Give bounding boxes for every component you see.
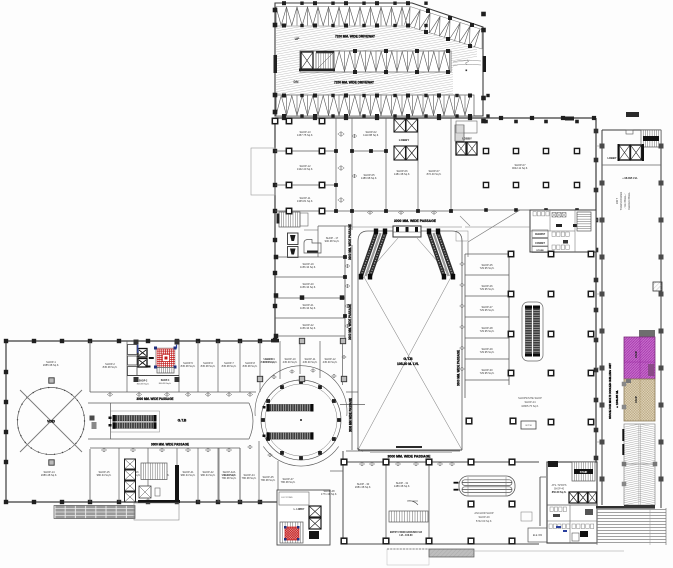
svg-text:3000 MM. WIDE PASSAGE: 3000 MM. WIDE PASSAGE — [348, 223, 352, 260]
svg-text:10805.75 Sq.ft.: 10805.75 Sq.ft. — [521, 404, 539, 408]
svg-text:845.38 Sq.ft.: 845.38 Sq.ft. — [103, 365, 118, 369]
svg-text:445.30 Sq.ft.: 445.30 Sq.ft. — [283, 360, 298, 364]
svg-text:3000 MM. WIDE PASSAGE: 3000 MM. WIDE PASSAGE — [137, 397, 174, 401]
svg-text:729.95 Sq.ft.: 729.95 Sq.ft. — [480, 308, 495, 312]
svg-text:845.38 Sq.ft.: 845.38 Sq.ft. — [222, 364, 237, 368]
svg-text:3000 MM. WIDE PASSAGE: 3000 MM. WIDE PASSAGE — [457, 349, 461, 386]
svg-text:1486.38 Sq.ft.: 1486.38 Sq.ft. — [394, 484, 410, 488]
svg-text:COSMET: COSMET — [535, 243, 545, 245]
svg-text:RAMP: RAMP — [635, 396, 638, 403]
svg-text:1156.34 Sq.ft.: 1156.34 Sq.ft. — [300, 285, 316, 289]
svg-text:3000 MM WIDE PASSAGE: 3000 MM WIDE PASSAGE — [349, 398, 353, 432]
svg-text:ANCHOR SHOP: ANCHOR SHOP — [474, 511, 494, 515]
svg-text:1481.38 Sq.ft.: 1481.38 Sq.ft. — [394, 172, 410, 176]
svg-text:SHOP-4: SHOP-4 — [161, 379, 170, 382]
svg-text:729.95 Sq.ft.: 729.95 Sq.ft. — [480, 287, 495, 291]
svg-text:+ 108.35 M.: + 108.35 M. — [615, 390, 619, 408]
svg-text:200 T: 200 T — [616, 197, 619, 204]
svg-text:ELE. RM: ELE. RM — [533, 535, 542, 537]
svg-text:TRANSFORMER: TRANSFORMER — [620, 191, 623, 210]
svg-text:445.30 Sq.ft.: 445.30 Sq.ft. — [303, 360, 318, 364]
svg-text:LOBBY: LOBBY — [399, 138, 410, 142]
svg-text:G.T.B: G.T.B — [403, 357, 413, 361]
svg-text:9042.11 Sq.ft.: 9042.11 Sq.ft. — [512, 166, 528, 170]
svg-text:SHOP-2: SHOP-2 — [139, 381, 148, 383]
svg-text:800.38 Sq.ft.: 800.38 Sq.ft. — [137, 382, 150, 385]
svg-text:1156.34 Sq.ft.: 1156.34 Sq.ft. — [300, 265, 316, 269]
svg-text:1771.38 Sq.ft.: 1771.38 Sq.ft. — [321, 492, 337, 496]
svg-text:729.95 Sq.ft.: 729.95 Sq.ft. — [480, 350, 495, 354]
svg-text:G.T.B: G.T.B — [178, 419, 187, 423]
svg-text:7200 MM. WIDE DRIVEWAY: 7200 MM. WIDE DRIVEWAY — [334, 80, 374, 85]
svg-text:980.34 Sq.ft.: 980.34 Sq.ft. — [181, 473, 196, 477]
svg-text:3000 MM. WIDE PASSAGE: 3000 MM. WIDE PASSAGE — [348, 303, 352, 340]
svg-text:1486.98 Sq.ft.: 1486.98 Sq.ft. — [361, 176, 377, 180]
svg-text:5742.60 Sq.ft.: 5742.60 Sq.ft. — [476, 519, 492, 523]
svg-text:2085.38 Sq.ft.: 2085.38 Sq.ft. — [43, 363, 59, 367]
svg-text:1457.75 Sq.ft.: 1457.75 Sq.ft. — [297, 133, 313, 137]
svg-text:872.40 Sq.ft.: 872.40 Sq.ft. — [427, 172, 442, 176]
svg-text:786.38 Sq.ft.: 786.38 Sq.ft. — [281, 480, 296, 484]
svg-text:105.20 M. LVL: 105.20 M. LVL — [397, 362, 419, 366]
svg-text:STAIR: STAIR — [580, 470, 588, 474]
svg-text:1342.40 Sq.ft.: 1342.40 Sq.ft. — [297, 167, 313, 171]
svg-text:SPACE FOR MULTI COOLED CHILLIN: SPACE FOR MULTI COOLED CHILLING UNIT — [608, 363, 612, 419]
svg-text:STORE: STORE — [536, 250, 544, 252]
svg-text:FEEDER PANEL: FEEDER PANEL — [628, 191, 631, 210]
svg-text:786.38 Sq.ft.: 786.38 Sq.ft. — [242, 476, 257, 480]
svg-text:VOID: VOID — [47, 420, 55, 424]
svg-text:845.38 Sq.ft.: 845.38 Sq.ft. — [181, 364, 196, 368]
svg-text:2086.48 Sq.ft.: 2086.48 Sq.ft. — [41, 473, 57, 477]
svg-text:DN: DN — [294, 80, 299, 84]
svg-text:1156.34 Sq.ft.: 1156.34 Sq.ft. — [300, 306, 316, 310]
svg-text:LILY POND: LILY POND — [281, 497, 293, 499]
svg-text:729.95 Sq.ft.: 729.95 Sq.ft. — [480, 371, 495, 375]
svg-text:SHOP-40: SHOP-40 — [554, 487, 565, 490]
svg-text:980.34 Sq.ft.: 980.34 Sq.ft. — [97, 473, 112, 477]
svg-text:845.38 Sq.ft.: 845.38 Sq.ft. — [243, 364, 258, 368]
svg-text:900.38 Sq.ft.: 900.38 Sq.ft. — [325, 239, 340, 243]
svg-text:7200 MM. WIDE DRIVEWAY: 7200 MM. WIDE DRIVEWAY — [335, 34, 375, 39]
svg-text:729.95 Sq.ft.: 729.95 Sq.ft. — [480, 329, 495, 333]
svg-text:/ DG PANEL /: / DG PANEL / — [624, 193, 627, 208]
svg-text:1156.34 Sq.ft.: 1156.34 Sq.ft. — [300, 326, 316, 330]
svg-text:SHOP-24: SHOP-24 — [524, 400, 536, 404]
svg-text:RAMP: RAMP — [635, 351, 638, 358]
svg-text:1113.88 Sq.ft.: 1113.88 Sq.ft. — [363, 133, 379, 137]
svg-text:845.38 Sq.ft.: 845.38 Sq.ft. — [201, 364, 216, 368]
svg-text:SHOPS/SITE SHOP: SHOPS/SITE SHOP — [518, 396, 542, 400]
svg-text:+ 98.095 LVL: + 98.095 LVL — [622, 176, 638, 180]
svg-text:L. LOBBY: L. LOBBY — [294, 509, 305, 511]
svg-text:445.30 Sq.ft.: 445.30 Sq.ft. — [263, 360, 278, 364]
svg-text:980.34 Sq.ft.: 980.34 Sq.ft. — [201, 473, 216, 477]
svg-text:LOBBY: LOBBY — [462, 137, 472, 141]
svg-text:445.30 Sq.ft.: 445.30 Sq.ft. — [323, 360, 338, 364]
svg-text:850.60 Sq.ft.: 850.60 Sq.ft. — [552, 491, 567, 494]
svg-text:3000 MM. WIDE PASSAGE: 3000 MM. WIDE PASSAGE — [388, 455, 431, 459]
svg-text:LVL. 100.60: LVL. 100.60 — [400, 534, 414, 537]
svg-text:3000 MM. WIDE PASSAGE: 3000 MM. WIDE PASSAGE — [394, 218, 436, 223]
svg-text:3000 MM. WIDE PASSAGE: 3000 MM. WIDE PASSAGE — [151, 443, 189, 447]
svg-text:CHEMIST: CHEMIST — [535, 234, 546, 236]
svg-text:800.38 Sq.ft.: 800.38 Sq.ft. — [159, 382, 172, 385]
svg-text:786.38 Sq.ft.: 786.38 Sq.ft. — [261, 478, 276, 482]
svg-text:1365.81 Sq.ft.: 1365.81 Sq.ft. — [297, 199, 313, 203]
svg-text:2081.38 Sq.ft.: 2081.38 Sq.ft. — [355, 485, 371, 489]
svg-text:SHOP-29: SHOP-29 — [478, 515, 490, 519]
svg-text:729.95 Sq.ft.: 729.95 Sq.ft. — [480, 266, 495, 270]
svg-text:W.T.W: W.T.W — [525, 425, 532, 427]
svg-text:LOBBY: LOBBY — [607, 156, 616, 160]
svg-text:UP: UP — [295, 37, 300, 41]
svg-text:786.38 Sq.ft.: 786.38 Sq.ft. — [222, 476, 237, 480]
